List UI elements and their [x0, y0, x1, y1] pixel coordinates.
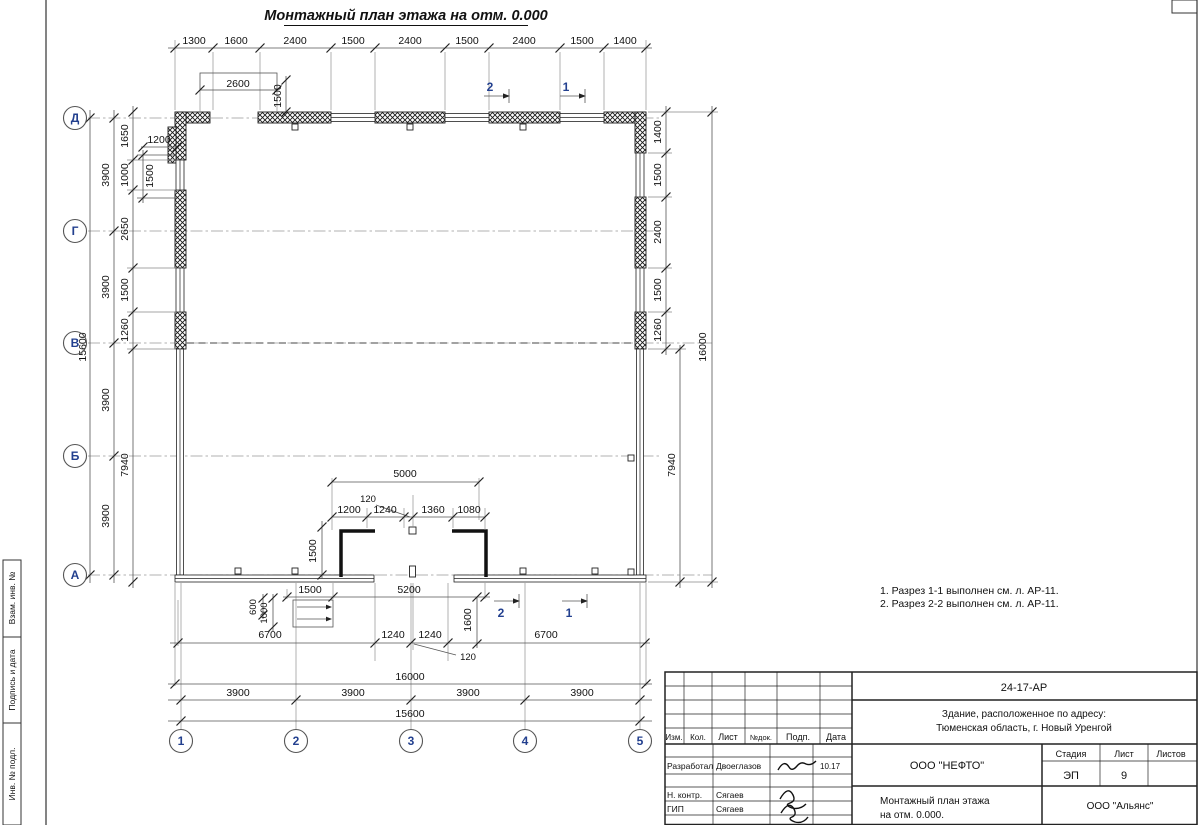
dim-label: 3900 [341, 687, 365, 699]
dim-label: 1200 [147, 134, 171, 146]
dim-label: 1400 [652, 120, 664, 144]
dim-label: 1300 [182, 35, 206, 47]
section-label: 1 [566, 606, 573, 620]
axis-bubble-col-2: 2 [285, 730, 308, 753]
stage-col-header: Стадия [1056, 749, 1087, 759]
axis-label: А [71, 568, 80, 582]
dim-label: 1000 [119, 163, 131, 187]
dim-label: 1600 [462, 608, 474, 632]
name-cell: Двоеглазов [716, 761, 762, 771]
notes: 1. Разрез 1-1 выполнен см. л. АР-11. 2. … [880, 585, 1059, 610]
side-label: Инв. № подл. [7, 748, 17, 801]
section-label: 1 [563, 80, 570, 94]
frame-side-labels: Взам. инв. № Подпись и дата Инв. № подл. [3, 560, 21, 825]
doc-number: 24-17-АР [1001, 682, 1047, 694]
dim-label: 3900 [100, 275, 112, 299]
dim-label: 1500 [144, 164, 156, 188]
axis-label: Б [71, 449, 80, 463]
page-title: Монтажный план этажа на отм. 0.000 [264, 8, 547, 24]
org-name: ООО "Альянс" [1087, 801, 1154, 812]
axis-label: Г [72, 224, 79, 238]
dim-label: 2400 [283, 35, 307, 47]
role-cell: Н. контр. [667, 790, 702, 800]
name-cell: Сягаев [716, 790, 744, 800]
title-block: Изм. Кол. Лист №док. Подп. Дата Разработ… [665, 672, 1197, 825]
dim-label: 1200 [337, 504, 361, 516]
dim-label: 1080 [457, 504, 481, 516]
object-address-line: Здание, расположенное по адресу: [942, 709, 1106, 720]
section-marks: 2 1 2 1 [484, 80, 588, 620]
dim-label: 1500 [119, 278, 131, 302]
object-address-line: Тюменская область, г. Новый Уренгой [936, 722, 1112, 734]
axis-bubble-row-g: Г [64, 220, 87, 243]
extension-lines [127, 40, 718, 729]
walls [168, 112, 646, 582]
floor-plan-svg: Монтажный план этажа на отм. 0.000 [0, 0, 1200, 825]
axis-label: 4 [522, 734, 529, 748]
dim-label: 1500 [272, 84, 284, 108]
axis-label: 3 [408, 734, 415, 748]
axis-bubble-col-5: 5 [629, 730, 652, 753]
axis-bubble-row-a: А [64, 564, 87, 587]
dim-label: 2400 [512, 35, 536, 47]
dim-label: 1260 [652, 318, 664, 342]
axis-label: Д [71, 111, 80, 125]
dim-label: 1240 [418, 629, 442, 641]
stage-value: ЭП [1063, 770, 1079, 782]
section-mark-1-bottom: 1 [562, 594, 588, 620]
dim-label: 5000 [393, 468, 417, 480]
dim-label: 1500 [341, 35, 365, 47]
dim-label: 1240 [381, 629, 405, 641]
dim-label: 1240 [373, 504, 397, 516]
axis-bubbles: Д Г В Б А 1 2 3 4 5 [64, 107, 652, 753]
note-line: 1. Разрез 1-1 выполнен см. л. АР-11. [880, 585, 1059, 597]
dim-label: 1500 [455, 35, 479, 47]
dim-label: 6700 [258, 629, 282, 641]
col-header: Изм. [665, 733, 682, 742]
note-line: 2. Разрез 2-2 выполнен см. л. АР-11. [880, 598, 1059, 610]
dim-label: 2650 [119, 217, 131, 241]
stage-col-header: Лист [1114, 749, 1134, 759]
drawing-sheet: Монтажный план этажа на отм. 0.000 [0, 0, 1200, 825]
section-mark-1-top: 1 [560, 80, 586, 103]
section-label: 2 [487, 80, 494, 94]
role-cell: ГИП [667, 804, 684, 814]
dim-label: 1360 [421, 504, 445, 516]
dim-label: 6700 [534, 629, 558, 641]
dim-label: 3900 [100, 163, 112, 187]
date-cell: 10.17 [820, 762, 841, 771]
dim-label: 1500 [298, 584, 322, 596]
axis-bubble-col-3: 3 [400, 730, 423, 753]
dim-label: 7940 [666, 453, 678, 477]
dim-label: 1500 [652, 278, 664, 302]
role-cell: Разработал [667, 761, 713, 771]
axis-bubble-col-4: 4 [514, 730, 537, 753]
col-header: Дата [826, 732, 846, 742]
dim-label: 120 [460, 652, 476, 663]
section-mark-2-bottom: 2 [494, 594, 520, 620]
axis-label: 2 [293, 734, 300, 748]
dim-label: 1500 [307, 539, 319, 563]
stage-col-header: Листов [1156, 749, 1185, 759]
section-label: 2 [498, 606, 505, 620]
dim-label: 1400 [613, 35, 637, 47]
dim-label: 600 [248, 599, 259, 615]
axis-label: В [71, 336, 80, 350]
dim-label: 1500 [570, 35, 594, 47]
signatures [778, 761, 816, 822]
dim-label: 3900 [570, 687, 594, 699]
dim-label: 7940 [119, 453, 131, 477]
side-label: Взам. инв. № [7, 572, 17, 625]
dim-label: 1600 [224, 35, 248, 47]
dim-label: 16000 [395, 671, 424, 683]
frame-corner-box [1172, 0, 1197, 13]
col-header: Лист [718, 732, 738, 742]
dim-label: 2400 [398, 35, 422, 47]
axis-bubble-row-b: Б [64, 445, 87, 468]
subject-line: на отм. 0.000. [880, 810, 944, 821]
side-label: Подпись и дата [7, 649, 17, 710]
dim-label: 15600 [395, 708, 424, 720]
dim-label: 1650 [119, 124, 131, 148]
dim-label: 16000 [697, 332, 709, 361]
col-header: Кол. [690, 733, 706, 742]
axis-bubble-row-d: Д [64, 107, 87, 130]
top-windows [331, 114, 604, 122]
dim-label: 2600 [226, 78, 250, 90]
axis-label: 5 [637, 734, 644, 748]
company-name: ООО "НЕФТО" [910, 760, 984, 772]
col-header: №док. [750, 733, 772, 742]
dim-label: 1500 [652, 163, 664, 187]
dim-label: 3900 [100, 388, 112, 412]
axis-bubble-col-1: 1 [170, 730, 193, 753]
name-cell: Сягаев [716, 804, 744, 814]
vestibule-partition [341, 527, 486, 577]
dim-label: 1000 [259, 602, 270, 623]
dim-label: 2400 [652, 220, 664, 244]
subject-line: Монтажный план этажа [880, 796, 990, 807]
dim-label: 1260 [119, 318, 131, 342]
dim-label: 3900 [226, 687, 250, 699]
dim-label: 5200 [397, 584, 421, 596]
axis-label: 1 [178, 734, 185, 748]
section-mark-2-top: 2 [484, 80, 510, 103]
sheet-frame [46, 0, 1197, 825]
col-header: Подп. [786, 732, 810, 742]
dim-label: 3900 [456, 687, 480, 699]
dim-label: 3900 [100, 504, 112, 528]
sheet-number: 9 [1121, 770, 1127, 782]
